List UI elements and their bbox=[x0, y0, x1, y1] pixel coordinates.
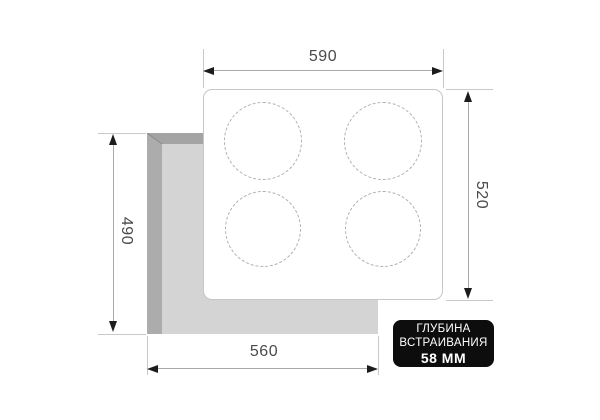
installation-depth-badge: ГЛУБИНА ВСТРАИВАНИЯ 58 ММ bbox=[393, 320, 494, 367]
extension-line bbox=[378, 336, 379, 375]
arrowhead-up-icon bbox=[109, 134, 117, 145]
extension-line bbox=[443, 49, 444, 88]
extension-line bbox=[446, 300, 493, 301]
extension-line bbox=[98, 334, 146, 335]
burner-zone-top-left bbox=[224, 102, 302, 180]
badge-line-2: ВСТРАИВАНИЯ bbox=[399, 336, 487, 351]
extension-line bbox=[446, 89, 493, 90]
cooktop-top-view bbox=[203, 89, 443, 300]
dimension-line bbox=[468, 95, 469, 295]
dimension-line bbox=[207, 70, 440, 71]
arrowhead-right-icon bbox=[367, 365, 378, 373]
dimension-value-top: 590 bbox=[309, 48, 337, 66]
arrowhead-down-icon bbox=[109, 321, 117, 332]
burner-zone-bottom-right bbox=[345, 191, 421, 267]
badge-depth-value: 58 ММ bbox=[421, 351, 466, 366]
badge-line-1: ГЛУБИНА bbox=[416, 322, 470, 337]
dimension-value-left: 490 bbox=[117, 217, 135, 245]
burner-zone-top-right bbox=[344, 102, 422, 180]
cutout-left-edge bbox=[147, 133, 162, 334]
dimension-line bbox=[113, 138, 114, 329]
arrowhead-left-icon bbox=[147, 365, 158, 373]
dimension-value-right: 520 bbox=[472, 181, 490, 209]
burner-zone-bottom-left bbox=[225, 191, 301, 267]
arrowhead-down-icon bbox=[464, 288, 472, 299]
cooktop-dimensions-diagram: 590 520 490 560 ГЛУБИНА ВСТРАИВАНИЯ 58 М… bbox=[0, 0, 600, 420]
dimension-value-bottom: 560 bbox=[250, 343, 278, 361]
arrowhead-right-icon bbox=[432, 67, 443, 75]
arrowhead-left-icon bbox=[203, 67, 214, 75]
dimension-line bbox=[151, 368, 375, 369]
extension-line bbox=[98, 133, 146, 134]
arrowhead-up-icon bbox=[464, 91, 472, 102]
